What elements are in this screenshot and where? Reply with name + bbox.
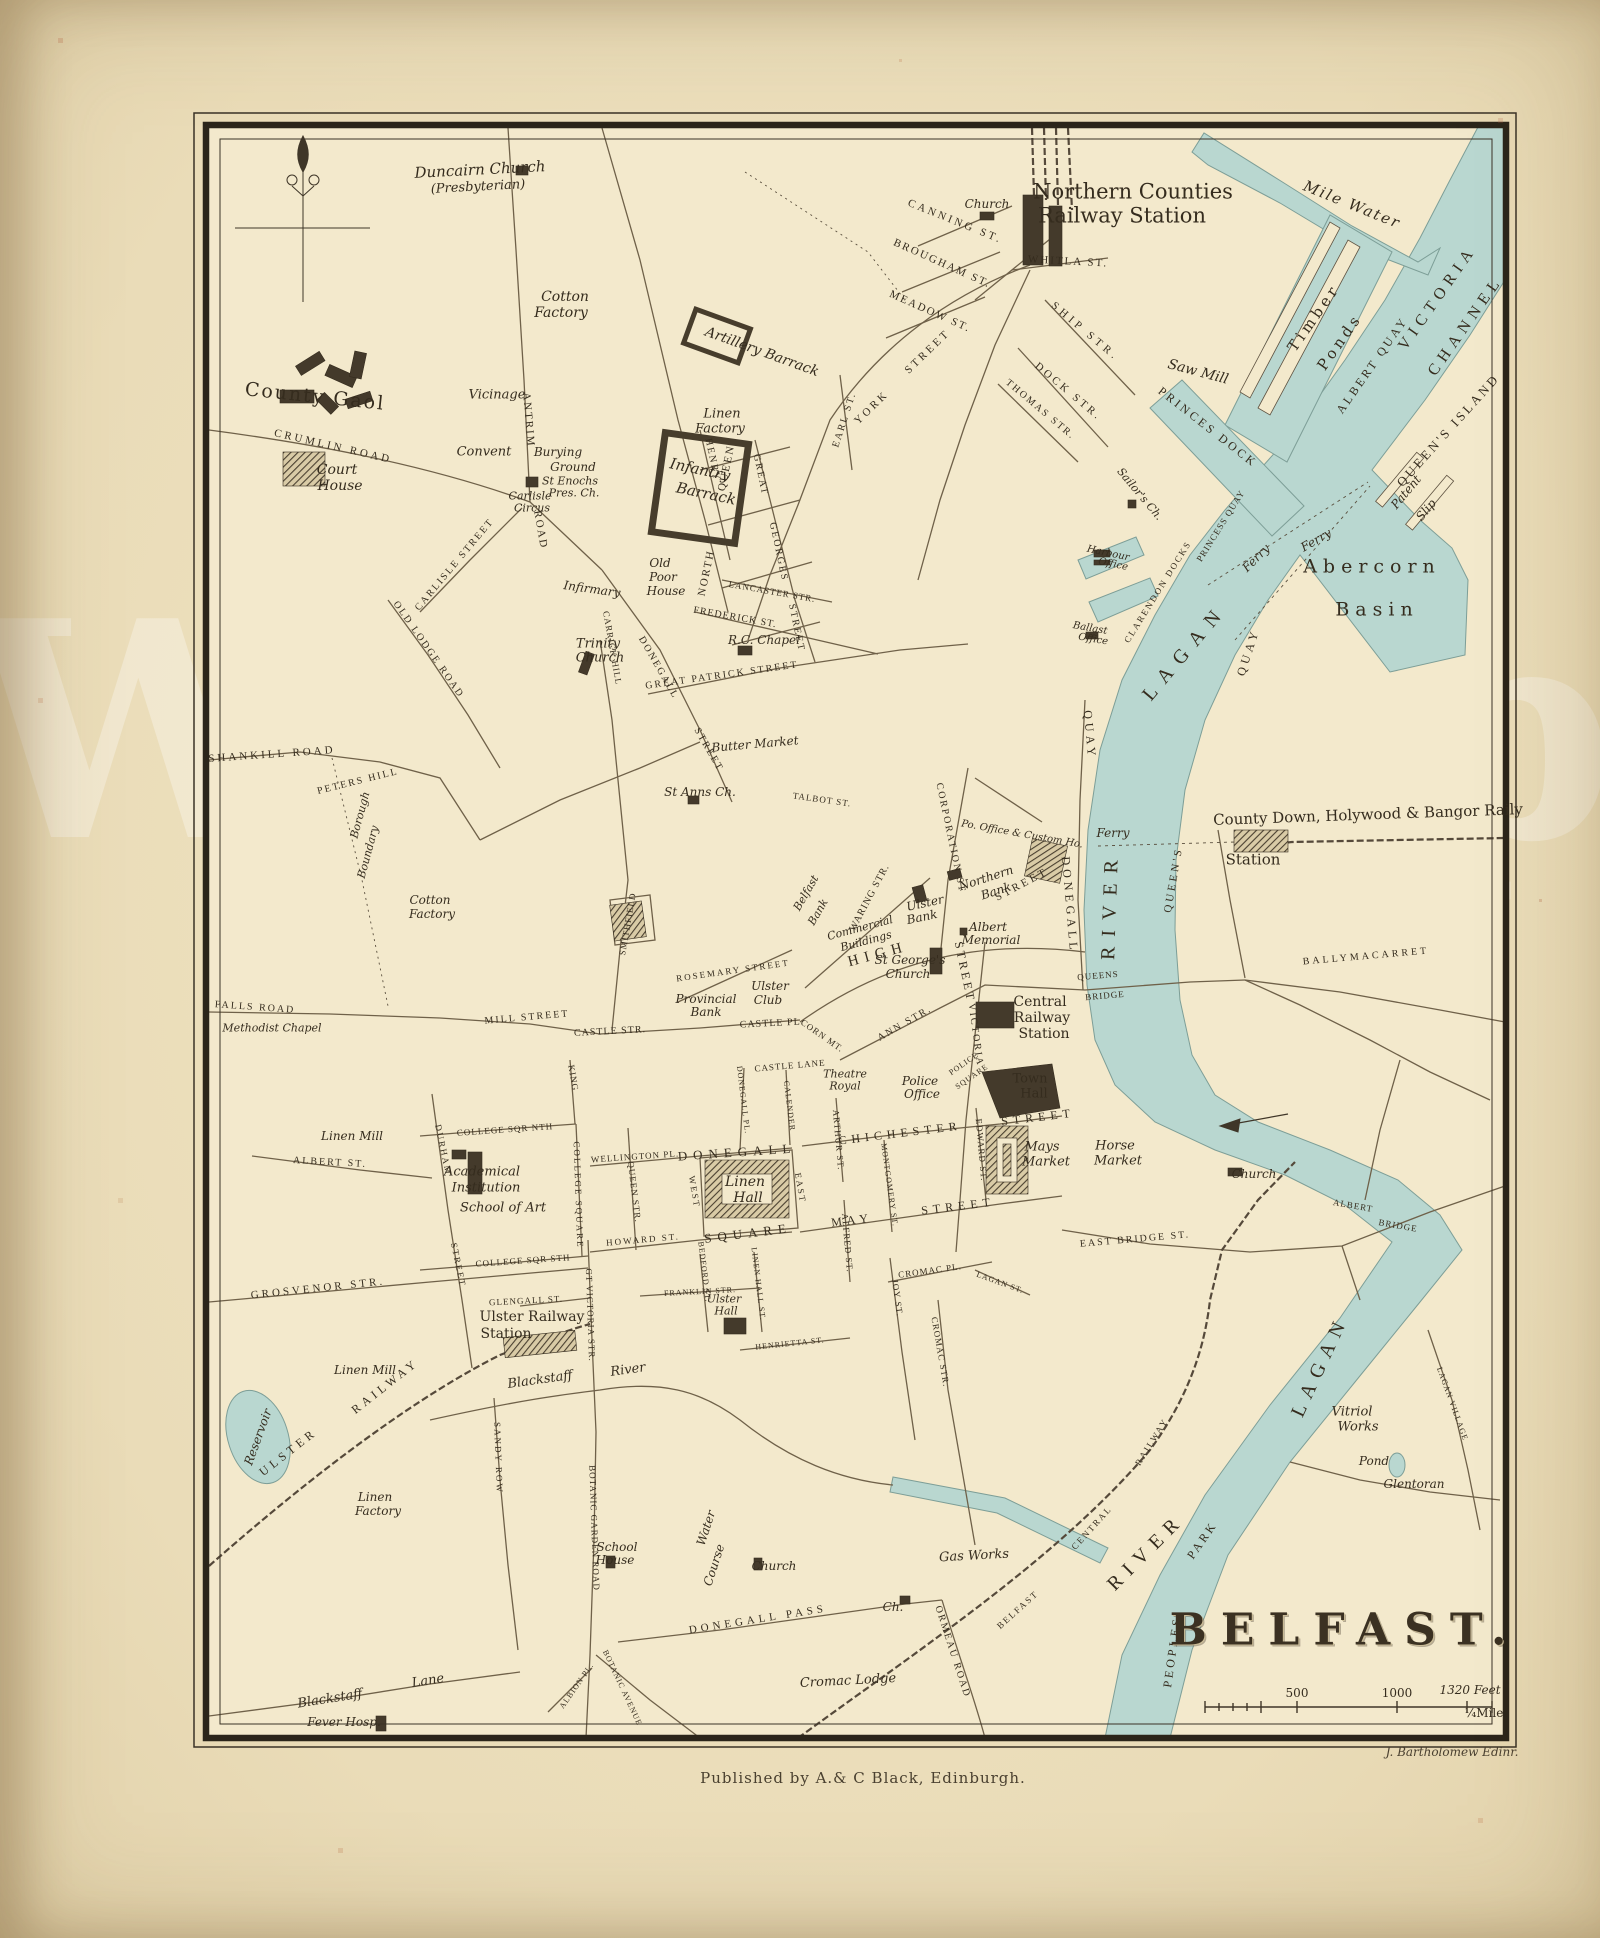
map-label: River	[610, 1361, 647, 1379]
map-label: Linen	[703, 408, 740, 421]
map-label: SHANKILL ROAD	[208, 745, 336, 765]
map-label: GREAT	[751, 453, 770, 496]
map-label: Court	[317, 463, 357, 477]
map-label: FREDERICK ST.	[693, 606, 778, 631]
map-label: BALLYMACARRET	[1302, 946, 1429, 967]
map-label: Linen	[358, 1491, 392, 1503]
map-label: Cromac Lodge	[800, 1672, 897, 1690]
map-label: DONEGALL	[1060, 856, 1080, 954]
map-label: Cotton	[409, 894, 450, 906]
map-label: DONEGALL	[677, 1141, 796, 1162]
map-label: St Enochs	[542, 476, 598, 487]
map-label: HOWARD ST.	[606, 1232, 680, 1247]
map-label: QUEEN'S	[1163, 846, 1185, 913]
map-label: Station	[1226, 853, 1281, 868]
map-label: BRIDGE	[1378, 1218, 1418, 1234]
map-label: LANCASTER STR.	[728, 580, 816, 604]
map-label: CALENDER	[782, 1080, 796, 1131]
map-label: Railway	[1014, 1011, 1070, 1025]
map-label: ALBION PL.	[558, 1662, 595, 1710]
map-label: PARK	[1185, 1519, 1219, 1561]
map-label: QUEEN STR.	[626, 1161, 642, 1223]
map-label: Old	[649, 557, 670, 569]
map-label: ARTHUR ST.	[831, 1109, 845, 1170]
map-label: Horse	[1095, 1140, 1135, 1153]
map-label: MONTGOMERY ST.	[879, 1143, 899, 1228]
map-label: Ulster	[751, 980, 789, 992]
map-label: R.C. Chapel	[728, 634, 800, 646]
map-label: Office	[904, 1088, 940, 1100]
map-label: Church	[965, 198, 1010, 210]
map-label: Club	[754, 994, 782, 1006]
map-label: Mile Water	[1301, 179, 1403, 232]
map-label: Butter Market	[711, 734, 799, 754]
map-label: Central	[1013, 995, 1066, 1009]
map-label: Cotton	[541, 290, 589, 304]
map-label: 500	[1286, 1687, 1309, 1699]
map-label: Ferry	[1096, 827, 1129, 839]
map-label: Hall	[733, 1191, 763, 1205]
map-label: SQUARE	[704, 1221, 793, 1245]
map-label: Linen	[725, 1175, 765, 1189]
map-label: MILL STREET	[484, 1009, 570, 1026]
map-label: Po. Office & Custom Ho.	[960, 819, 1083, 850]
map-label: CORN MT.	[799, 1018, 845, 1054]
map-label: Ch.	[883, 1601, 904, 1613]
map-label: Royal	[829, 1081, 860, 1092]
map-label: Station	[480, 1327, 531, 1341]
map-label: FALLS ROAD	[214, 1000, 295, 1016]
map-label: MEADOW ST.	[888, 289, 973, 335]
map-label: CROMAC STR.	[929, 1316, 950, 1388]
map-label: County Gaol	[244, 380, 386, 414]
map-label: Memorial	[962, 934, 1021, 946]
engraver-credit: J. Bartholomew Edinr.	[1386, 1745, 1519, 1759]
map-label: STREET	[903, 328, 953, 376]
map-label: ORMEAU ROAD	[932, 1605, 971, 1700]
map-label: Market	[1094, 1155, 1142, 1168]
map-label: Slip	[1414, 497, 1438, 523]
map-label: Albert	[969, 921, 1007, 933]
map-label: Mays	[1024, 1141, 1059, 1154]
map-label: HENRIETTA ST.	[755, 1336, 825, 1351]
map-label: Church	[752, 1560, 797, 1572]
map-label: STREET	[921, 1196, 996, 1217]
map-label: Ground	[550, 461, 596, 473]
map-label: Ulster	[707, 1294, 742, 1305]
map-label: Institution	[452, 1182, 521, 1195]
map-label: Factory	[695, 423, 745, 436]
map-label: Church	[886, 968, 931, 980]
map-label: WHITLA ST.	[1028, 254, 1109, 269]
map-label: BELFAST	[996, 1589, 1041, 1631]
map-label: ALBERT	[1332, 1198, 1373, 1214]
map-label: House	[647, 585, 686, 597]
map-label: Theatre	[823, 1069, 867, 1080]
map-label: CASTLE PL.	[740, 1017, 805, 1030]
map-label: KING	[566, 1064, 579, 1092]
map-label: DONEGALL PL.	[735, 1065, 751, 1134]
map-label: Methodist Chapel	[222, 1023, 321, 1034]
map-label: 1000	[1382, 1687, 1413, 1699]
map-label: Northern Counties	[1033, 182, 1233, 203]
map-label: LAGAN ST.	[975, 1271, 1024, 1296]
map-label: EDWARD ST.	[974, 1118, 988, 1181]
map-label: STREET	[953, 940, 978, 1003]
map-label: GT VICTORIA STR.	[584, 1268, 596, 1362]
map-label: PETERS HILL	[316, 767, 399, 797]
map-label: COLLEGE SQR NTH	[457, 1122, 554, 1138]
map-label: CROMAC PL.	[898, 1262, 963, 1280]
map-label: COLLEGE SQR STH	[475, 1253, 570, 1269]
map-label: Pres. Ch.	[549, 488, 600, 499]
map-label: Factory	[534, 306, 588, 320]
map-label: Hall	[1020, 1088, 1047, 1101]
map-label: Water	[695, 1509, 718, 1547]
map-label: QUAY	[1082, 710, 1098, 760]
map-label: Artillery Barrack	[703, 325, 820, 379]
map-label: Course	[702, 1543, 727, 1588]
map-label: Factory	[409, 908, 455, 920]
map-label: Gas Works	[939, 1548, 1010, 1565]
map-label: Abercorn	[1303, 558, 1441, 577]
map-label: Factory	[355, 1505, 401, 1517]
map-label: EAST	[793, 1172, 807, 1204]
map-label: CRUMLIN ROAD	[273, 428, 393, 466]
map-label: CASTLE LANE	[754, 1058, 826, 1073]
map-label: CHICHESTER	[838, 1119, 963, 1146]
map-label: CASTLE STR.	[574, 1025, 647, 1039]
map-label: (Presbyterian)	[430, 178, 525, 196]
map-label: SHIP STR.	[1049, 300, 1121, 363]
map-label: Burying	[534, 446, 582, 458]
map-label: Blackstaff	[297, 1687, 364, 1710]
map-label: ROAD	[531, 510, 549, 550]
map-label: ALBERT ST.	[293, 1156, 367, 1170]
map-label: SMITHFIELD	[618, 892, 638, 956]
map-label: MAY	[830, 1211, 873, 1228]
map-label: Saw Mill	[1166, 357, 1230, 387]
map-label: DONEGALL PASS	[688, 1604, 828, 1637]
map-label: House	[317, 479, 362, 493]
map-label: RIVER	[1104, 1510, 1189, 1595]
map-label: St George's	[875, 954, 946, 966]
map-label: Basin	[1335, 601, 1418, 620]
map-label: QUEEN'S ISLAND	[1394, 371, 1502, 489]
map-label: ¼Mile	[1465, 1707, 1504, 1719]
map-label: RAILWAY	[1134, 1417, 1170, 1468]
map-label: 1320 Feet	[1439, 1684, 1500, 1696]
map-label: RIVER	[1098, 850, 1122, 961]
map-label: ANN STR.	[876, 1004, 934, 1043]
map-label: Ulster Railway	[480, 1310, 585, 1324]
map-label: QUAY	[1235, 627, 1262, 678]
map-label: CENTRAL	[1070, 1504, 1114, 1551]
map-label: Glentoran	[1384, 1478, 1445, 1490]
map-label: Ferry	[1240, 542, 1272, 574]
map-label: CLARENDON DOCKS	[1123, 539, 1193, 644]
map-label: PRINCESS QUAY	[1195, 489, 1246, 564]
map-label: Provincial	[676, 993, 737, 1005]
map-label: PRINCES DOCK	[1156, 385, 1260, 470]
map-label: School of Art	[460, 1202, 546, 1215]
map-label: TALBOT ST.	[792, 791, 852, 808]
map-label: CORPORATION ST	[933, 782, 966, 894]
map-label: Market	[1022, 1156, 1070, 1169]
map-label: Railway Station	[1038, 206, 1206, 227]
map-label: Bank	[691, 1006, 722, 1018]
map-label: Academical	[444, 1166, 520, 1179]
map-label: GLENGALL ST.	[489, 1295, 563, 1308]
map-label: Sailor's Ch.	[1115, 466, 1165, 522]
map-label: BOTANIC AVENUE	[601, 1649, 643, 1727]
map-label: Convent	[457, 446, 512, 459]
map-sheet: WardMaps	[0, 0, 1600, 1938]
map-label: Church	[1232, 1168, 1277, 1180]
map-label: Duncairn Church	[414, 159, 546, 181]
map-label: Pond	[1359, 1455, 1389, 1467]
map-label: Vitriol	[1332, 1406, 1373, 1419]
map-label: St Anns Ch.	[664, 786, 736, 798]
map-label: BRIDGE	[1085, 990, 1125, 1002]
map-label: BROUGHAM ST.	[891, 237, 992, 290]
map-label: EAST BRIDGE ST.	[1080, 1230, 1191, 1250]
map-label: DONEGALL	[636, 635, 680, 701]
map-label: Fever Hosp.	[307, 1716, 381, 1728]
map-label: Vicinage	[469, 389, 526, 402]
map-label: Ferry	[1299, 527, 1334, 554]
map-label: GEORGES	[767, 522, 789, 583]
paper-foxing-specks	[0, 0, 1, 1]
map-label: STREET	[1001, 1107, 1076, 1128]
map-label: Hall	[714, 1306, 737, 1317]
map-label: OLD LODGE ROAD	[391, 600, 466, 701]
map-label: CARLISLE STREET	[414, 517, 497, 613]
map-label: Lane	[411, 1672, 445, 1690]
map-label: LINEN HALL ST.	[750, 1247, 767, 1321]
map-label: Police	[902, 1075, 938, 1087]
map-label: Poor	[649, 571, 677, 583]
map-label: Station	[1018, 1027, 1069, 1041]
map-label: NORTH	[697, 549, 718, 597]
map-label: School	[597, 1541, 638, 1553]
map-label: WEST	[687, 1175, 702, 1209]
map-label: Blackstaff	[507, 1369, 574, 1391]
map-label: COLLEGE SQUARE	[572, 1141, 585, 1248]
map-label: DURHAM	[433, 1124, 453, 1177]
map-label: ANTRIM	[520, 392, 536, 448]
map-label: STREET	[449, 1242, 467, 1288]
map-label: BOTANIC GARDEN ROAD	[587, 1465, 600, 1591]
map-title: BELFAST.	[1170, 1605, 1521, 1656]
map-label: SANDY ROW	[492, 1422, 504, 1494]
map-label: Works	[1337, 1421, 1378, 1434]
map-label: Town	[1013, 1073, 1048, 1086]
map-label: JOY ST.	[890, 1279, 904, 1317]
map-label: GROSVENOR STR.	[250, 1276, 385, 1301]
map-label: County Down, Holywood & Bangor Raily	[1213, 802, 1523, 828]
map-label: Linen Mill	[321, 1130, 383, 1142]
map-label: QUEENS	[1077, 970, 1119, 983]
map-label: LAGAN	[1139, 600, 1231, 705]
map-label: Carlisle	[509, 491, 552, 502]
map-label: Infirmary	[563, 579, 621, 599]
map-label: LAGAN VILLAGE	[1435, 1366, 1469, 1442]
publisher-imprint: Published by A.& C Black, Edinburgh.	[700, 1769, 1026, 1787]
map-label: Bank	[806, 897, 830, 927]
map-label: House	[596, 1554, 635, 1566]
